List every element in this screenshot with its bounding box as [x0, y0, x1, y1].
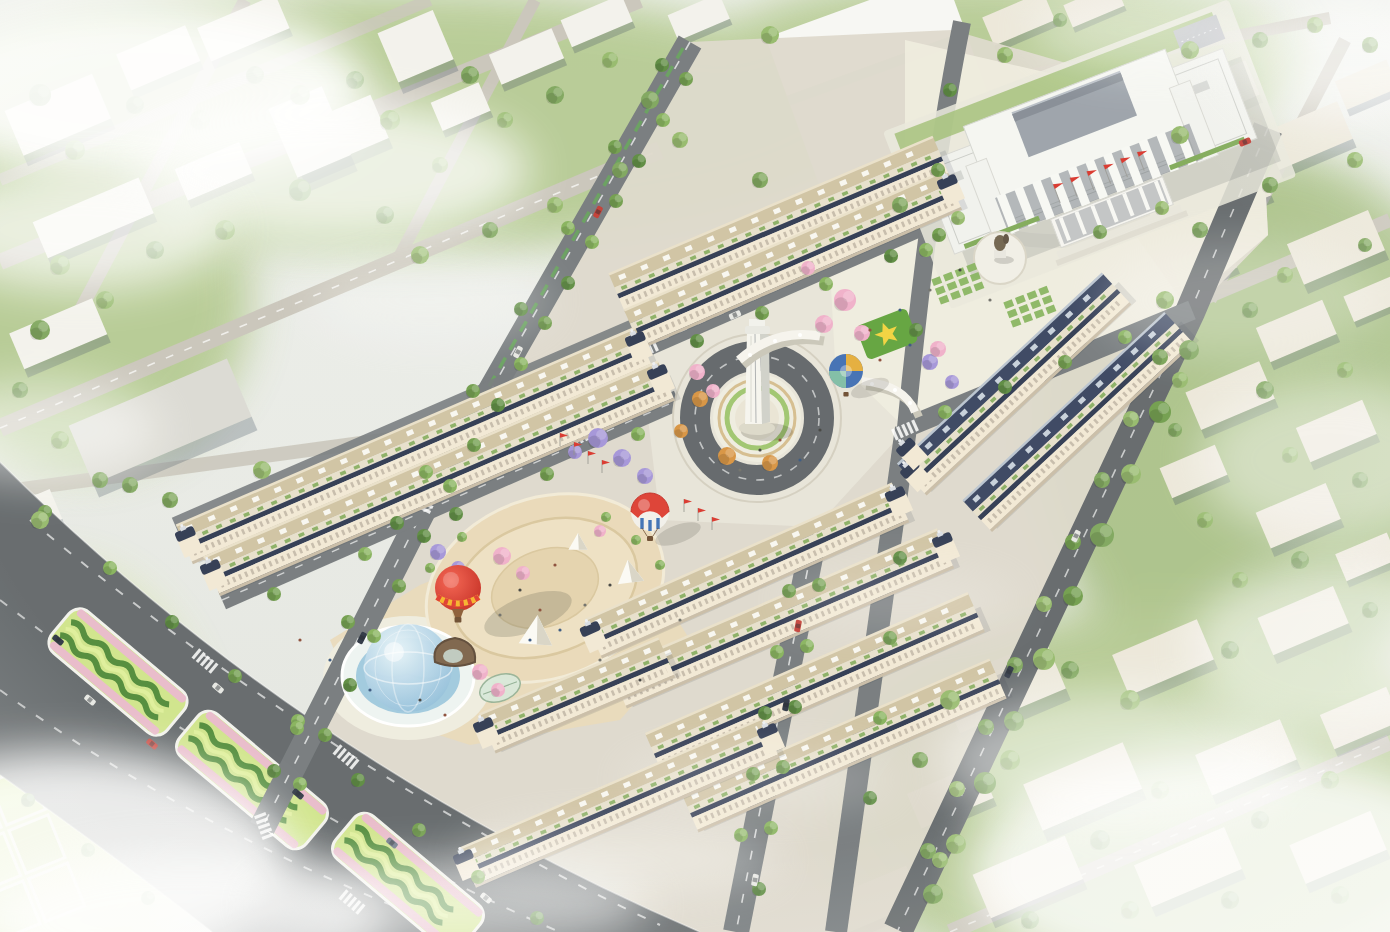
warm-light-wash — [0, 0, 1390, 932]
aerial-render — [0, 0, 1390, 932]
